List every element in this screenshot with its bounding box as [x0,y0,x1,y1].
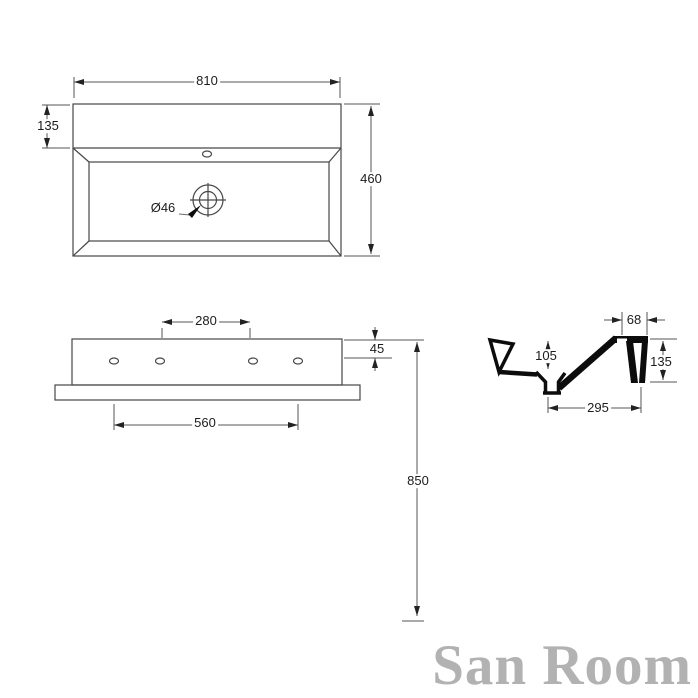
dim-label-edge-45: 45 [368,342,386,356]
technical-drawing-sheet: 810 135 460 Ø46 280 45 560 850 68 105 13… [0,0,698,698]
front-view-dimensions [114,322,424,621]
bevel-corner [73,241,89,256]
dim-label-rim-135: 135 [35,119,61,133]
dim-label-ledge-68: 68 [625,313,643,327]
mounting-hole [110,358,119,364]
dim-label-bowl-depth-105: 105 [533,349,559,363]
basin-opening-inner-rect [89,162,329,241]
side-view-section [490,336,648,393]
dim-label-outer-holes-560: 560 [192,416,218,430]
bevel-corner [329,148,341,162]
dim-label-drain-offset-295: 295 [585,401,611,415]
bowl-floor [499,372,537,375]
mounting-hole [249,358,258,364]
bevel-corner [73,148,89,162]
mounting-slab-rect [55,385,360,400]
front-view [55,339,360,400]
watermark-text: San Room [432,637,692,694]
dim-label-drain-diameter: Ø46 [149,201,178,215]
faucet-hole [203,151,212,157]
dim-label-height-135: 135 [648,355,674,369]
mounting-hole [294,358,303,364]
back-wall-outer-leg [639,341,648,383]
bevel-corner [329,241,341,256]
dim-label-install-height: 850 [405,474,431,488]
dim-label-depth-460: 460 [358,172,384,186]
front-rim-section [490,340,513,372]
dim-label-width-810: 810 [194,74,220,88]
overflow-slot [617,339,627,344]
washbasin-drawing [0,0,698,698]
back-wall-inner-leg [626,341,638,383]
mounting-hole [156,358,165,364]
top-view-outer-rect [73,104,341,256]
front-body-rect [72,339,342,385]
dim-label-inner-holes-280: 280 [193,314,219,328]
bowl-back-slope [559,338,616,388]
top-view [73,104,341,256]
